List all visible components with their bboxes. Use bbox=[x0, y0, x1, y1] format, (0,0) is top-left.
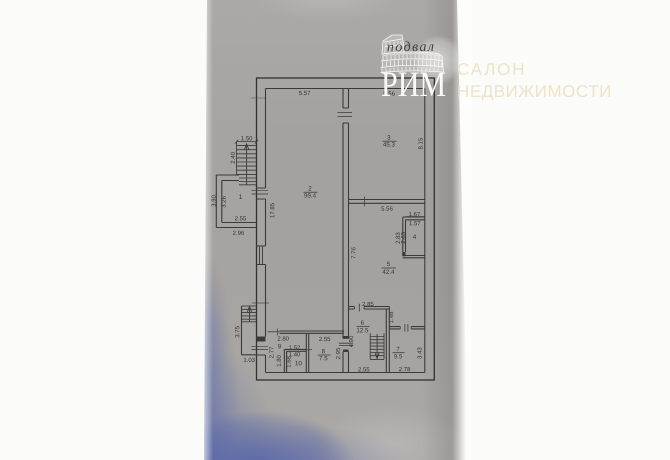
svg-text:5.57: 5.57 bbox=[299, 91, 311, 97]
svg-text:9: 9 bbox=[278, 343, 282, 350]
svg-text:4: 4 bbox=[413, 234, 417, 241]
svg-text:7.76: 7.76 bbox=[351, 247, 357, 259]
svg-text:6: 6 bbox=[361, 320, 365, 327]
svg-text:42.4: 42.4 bbox=[382, 269, 395, 276]
svg-text:2.80: 2.80 bbox=[277, 336, 289, 342]
svg-text:3.90: 3.90 bbox=[212, 194, 218, 206]
svg-text:1.67: 1.67 bbox=[409, 212, 421, 218]
svg-text:12.5: 12.5 bbox=[356, 327, 369, 334]
svg-text:4.90: 4.90 bbox=[349, 335, 355, 347]
svg-text:17.85: 17.85 bbox=[270, 202, 276, 218]
svg-text:45.3: 45.3 bbox=[383, 142, 396, 149]
svg-text:3.75: 3.75 bbox=[235, 325, 241, 337]
svg-text:8: 8 bbox=[322, 348, 326, 355]
svg-text:1.52: 1.52 bbox=[289, 345, 301, 351]
svg-text:8.15: 8.15 bbox=[418, 137, 424, 149]
svg-text:2.78: 2.78 bbox=[399, 367, 411, 373]
svg-text:1.50: 1.50 bbox=[241, 136, 253, 142]
svg-text:2.40: 2.40 bbox=[231, 151, 237, 163]
svg-text:5: 5 bbox=[387, 261, 391, 268]
svg-text:2.55: 2.55 bbox=[235, 216, 247, 222]
svg-text:3: 3 bbox=[387, 135, 391, 142]
svg-text:9.5: 9.5 bbox=[394, 353, 403, 360]
svg-text:3.26: 3.26 bbox=[222, 195, 228, 207]
svg-text:10: 10 bbox=[295, 360, 303, 367]
svg-text:1.80: 1.80 bbox=[277, 354, 283, 366]
svg-text:99.4: 99.4 bbox=[304, 192, 317, 199]
svg-text:1.03: 1.03 bbox=[243, 358, 255, 364]
svg-text:1.48: 1.48 bbox=[389, 311, 395, 323]
svg-text:7.5: 7.5 bbox=[319, 355, 328, 362]
svg-text:1.68: 1.68 bbox=[287, 355, 293, 367]
svg-text:3.43: 3.43 bbox=[417, 347, 423, 359]
svg-text:2.55: 2.55 bbox=[358, 367, 370, 373]
svg-text:2.55: 2.55 bbox=[319, 337, 331, 343]
svg-text:2.96: 2.96 bbox=[233, 231, 245, 237]
svg-text:2.63: 2.63 bbox=[401, 231, 407, 243]
svg-text:5.56: 5.56 bbox=[381, 207, 393, 213]
svg-text:2.95: 2.95 bbox=[336, 347, 342, 359]
svg-text:1.57: 1.57 bbox=[409, 221, 421, 227]
svg-text:2.85: 2.85 bbox=[362, 302, 374, 308]
svg-text:1: 1 bbox=[239, 194, 243, 201]
svg-text:2: 2 bbox=[308, 185, 312, 192]
svg-text:7: 7 bbox=[396, 346, 400, 353]
svg-text:2.77: 2.77 bbox=[269, 346, 275, 358]
